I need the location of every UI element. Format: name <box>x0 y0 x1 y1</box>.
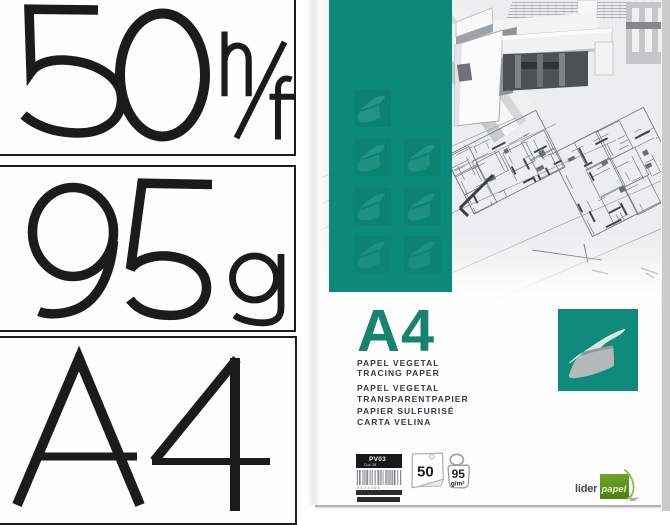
svg-text:50: 50 <box>417 464 434 481</box>
svg-text:95: 95 <box>452 467 466 481</box>
svg-text:g/m²: g/m² <box>451 481 466 488</box>
